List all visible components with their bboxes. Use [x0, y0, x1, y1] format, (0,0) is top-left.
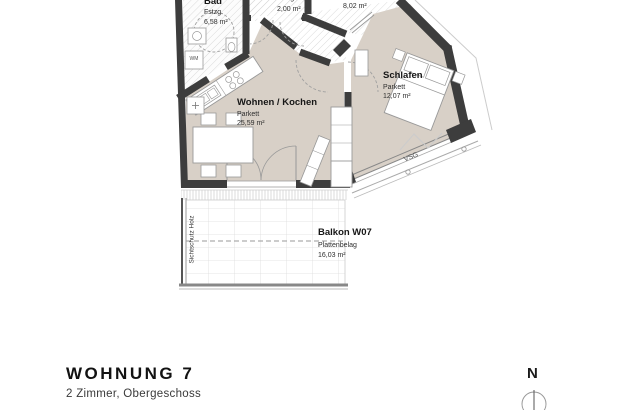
floorplan-drawing — [0, 0, 620, 410]
shaft-marker — [187, 97, 204, 114]
sofa — [331, 107, 352, 187]
room-finish-schlafen: Parkett — [383, 84, 405, 91]
page-title: WOHNUNG 7 — [66, 365, 194, 382]
room-area-3: 8,02 m² — [343, 3, 367, 10]
room-area-2: 2,00 m² — [277, 6, 301, 13]
privacy-screen-label: Sichtschutz Holz — [189, 194, 196, 286]
floorplan-page: Bad Fstzg. 6,58 m² Fstzg. 2,00 m² Fstzg.… — [0, 0, 620, 410]
washer-label: WM — [185, 57, 203, 62]
room-finish-2: Fstzg. — [277, 0, 296, 2]
page-subtitle: 2 Zimmer, Obergeschoss — [66, 389, 201, 401]
room-finish-wohnen: Parkett — [237, 111, 259, 118]
room-area-wohnen: 25,59 m² — [237, 120, 265, 127]
room-finish-balkon: Plattenbelag — [318, 242, 357, 249]
room-area-balkon: 16,03 m² — [318, 252, 346, 259]
room-label-schlafen: Schlafen — [383, 71, 423, 81]
balcony — [179, 190, 348, 289]
compass-icon — [522, 390, 546, 410]
room-finish-bad: Fstzg. — [204, 9, 223, 16]
room-label-wohnen: Wohnen / Kochen — [237, 98, 317, 108]
north-label: N — [527, 366, 538, 381]
room-area-bad: 6,58 m² — [204, 19, 228, 26]
room-label-bad: Bad — [204, 0, 222, 7]
room-area-schlafen: 12,07 m² — [383, 93, 411, 100]
room-label-balkon: Balkon W07 — [318, 228, 372, 238]
